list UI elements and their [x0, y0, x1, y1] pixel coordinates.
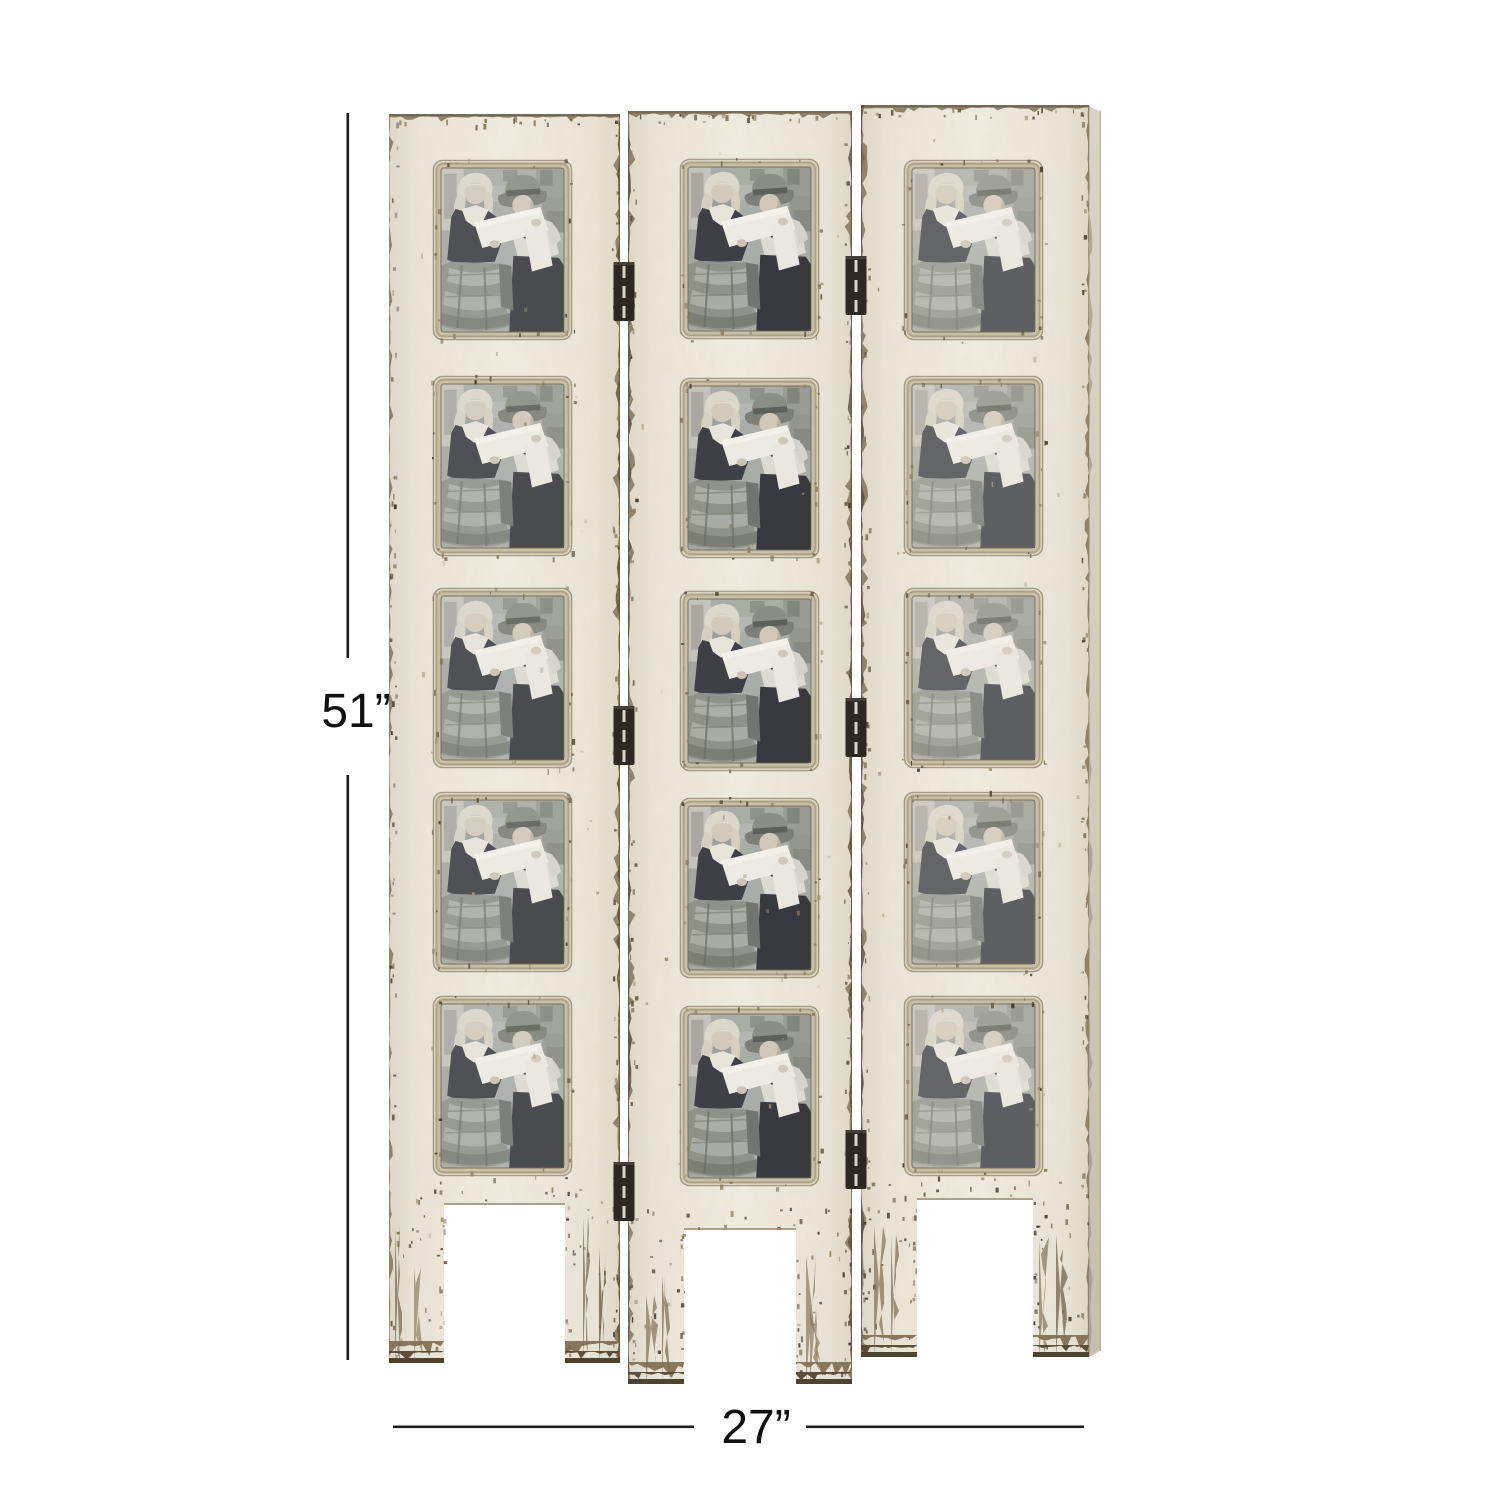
svg-text:51”: 51”: [321, 685, 390, 738]
svg-text:27”: 27”: [721, 1401, 790, 1454]
